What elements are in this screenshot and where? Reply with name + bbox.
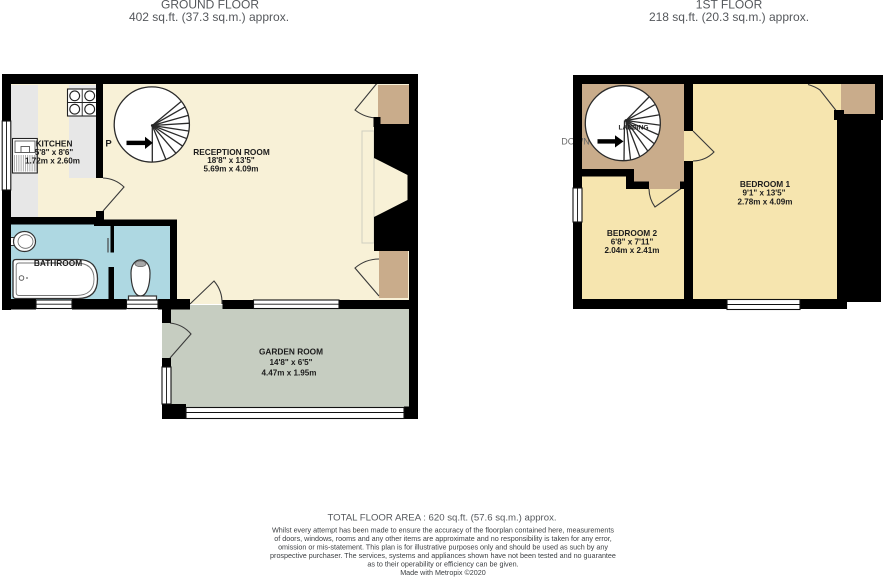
svg-text:TOTAL FLOOR AREA : 620 sq.ft.: TOTAL FLOOR AREA : 620 sq.ft. (57.6 sq.m… — [327, 513, 556, 524]
svg-text:9'1" x 13'5": 9'1" x 13'5" — [742, 189, 785, 198]
svg-text:BATHROOM: BATHROOM — [34, 258, 82, 268]
svg-text:218 sq.ft. (20.3 sq.m.) approx: 218 sq.ft. (20.3 sq.m.) approx. — [649, 10, 809, 24]
svg-text:LANDING: LANDING — [618, 125, 648, 132]
svg-text:1.72m x 2.60m: 1.72m x 2.60m — [25, 157, 80, 166]
svg-text:14'8" x 6'5": 14'8" x 6'5" — [269, 358, 312, 367]
svg-text:402 sq.ft. (37.3 sq.m.) approx: 402 sq.ft. (37.3 sq.m.) approx. — [129, 10, 289, 24]
svg-text:4.47m x 1.95m: 4.47m x 1.95m — [262, 369, 317, 378]
svg-text:BEDROOM 2: BEDROOM 2 — [607, 228, 658, 238]
svg-text:KITCHEN: KITCHEN — [36, 139, 73, 149]
svg-text:GARDEN ROOM: GARDEN ROOM — [259, 347, 323, 357]
svg-text:2.04m x 2.41m: 2.04m x 2.41m — [605, 246, 660, 255]
svg-text:BEDROOM 1: BEDROOM 1 — [740, 179, 791, 189]
svg-text:Made with Metropix ©2020: Made with Metropix ©2020 — [400, 568, 486, 577]
svg-text:5.69m x 4.09m: 5.69m x 4.09m — [204, 164, 259, 173]
svg-text:2.78m x 4.09m: 2.78m x 4.09m — [738, 197, 793, 206]
svg-text:P: P — [105, 139, 112, 150]
